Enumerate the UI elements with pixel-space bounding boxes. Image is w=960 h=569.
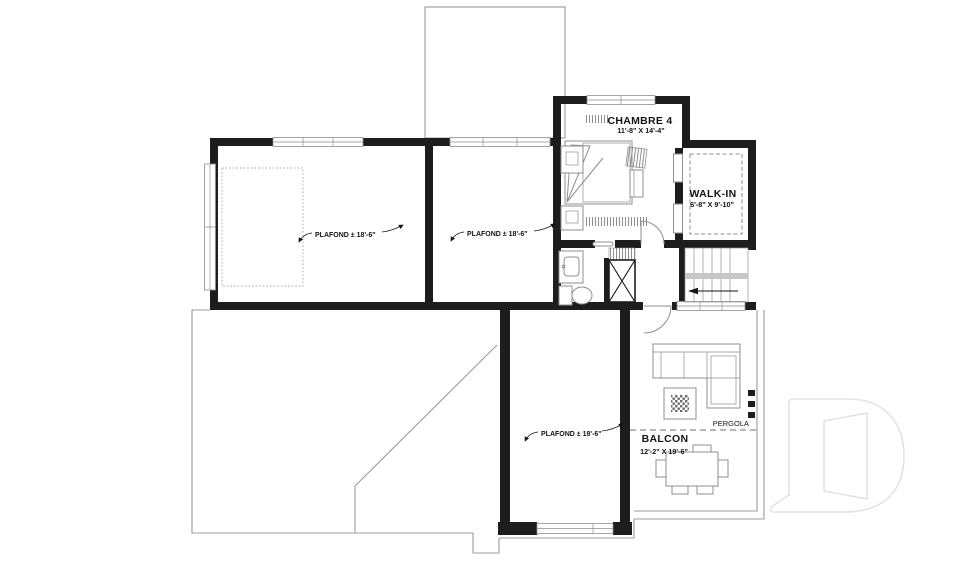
dining-chair xyxy=(656,460,666,477)
dining-chair xyxy=(672,486,688,494)
shelf xyxy=(586,115,610,123)
room-dims-balcon: 12'-2" X 19'-6" xyxy=(640,447,688,456)
window xyxy=(273,138,363,147)
pillow xyxy=(626,147,647,168)
coffee-table-texture xyxy=(671,395,689,412)
bed-bench xyxy=(630,170,643,197)
dining-table xyxy=(666,452,718,486)
dining-chair xyxy=(697,486,713,494)
bathroom-pocket-door xyxy=(593,242,613,246)
room-dims-chambre4: 11'-8" X 14'-4" xyxy=(617,126,664,135)
nightstand xyxy=(561,206,583,230)
rug xyxy=(585,217,648,226)
svg-text:PLAFOND ± 18'-6": PLAFOND ± 18'-6" xyxy=(315,232,376,239)
walkin-opening xyxy=(674,154,683,182)
linen-shelf xyxy=(609,248,635,260)
toilet xyxy=(559,286,592,305)
nightstand xyxy=(561,146,583,173)
window xyxy=(537,524,613,534)
floor-plan-drawing: CHAMBRE 4 11'-8" X 14'-4" WALK-IN 6'-8" … xyxy=(0,0,960,569)
window xyxy=(450,138,550,147)
lower-roof-outline xyxy=(192,310,499,553)
window xyxy=(205,164,216,290)
room-dims-walkin: 6'-8" X 9'-10" xyxy=(690,200,734,209)
ceiling-slope-dashed-area xyxy=(222,168,303,286)
coffee-table xyxy=(664,388,696,419)
stair-landing-band xyxy=(685,273,748,279)
dining-chair xyxy=(718,460,728,477)
room-label-balcon: BALCON xyxy=(642,433,689,445)
window xyxy=(677,302,745,311)
balcony-door xyxy=(643,301,672,333)
brand-watermark-d-logo xyxy=(770,399,904,512)
laundry-chute xyxy=(609,260,635,302)
ceiling-note-left: PLAFOND ± 18'-6" xyxy=(299,225,403,242)
floor-plan-canvas: CHAMBRE 4 11'-8" X 14'-4" WALK-IN 6'-8" … xyxy=(0,0,960,569)
pergola-posts xyxy=(748,390,755,418)
vanity-sink xyxy=(559,251,583,283)
window xyxy=(587,96,655,105)
room-label-walkin: WALK-IN xyxy=(689,188,736,200)
bathroom-fixtures xyxy=(559,248,635,305)
stairs xyxy=(685,248,748,302)
walkin-opening xyxy=(674,204,683,233)
stair-direction-arrow xyxy=(688,288,738,294)
upper-roof-outline xyxy=(425,7,565,138)
pergola-label: PERGOLA xyxy=(713,419,749,428)
ceiling-note-middle: PLAFOND ± 18'-6" xyxy=(451,224,555,241)
roof-valley-line xyxy=(355,345,497,486)
svg-text:PLAFOND ± 18'-6": PLAFOND ± 18'-6" xyxy=(541,431,602,438)
ceiling-note-bottom: PLAFOND ± 18'-6" xyxy=(525,424,623,441)
svg-text:PLAFOND ± 18'-6": PLAFOND ± 18'-6" xyxy=(467,231,528,238)
